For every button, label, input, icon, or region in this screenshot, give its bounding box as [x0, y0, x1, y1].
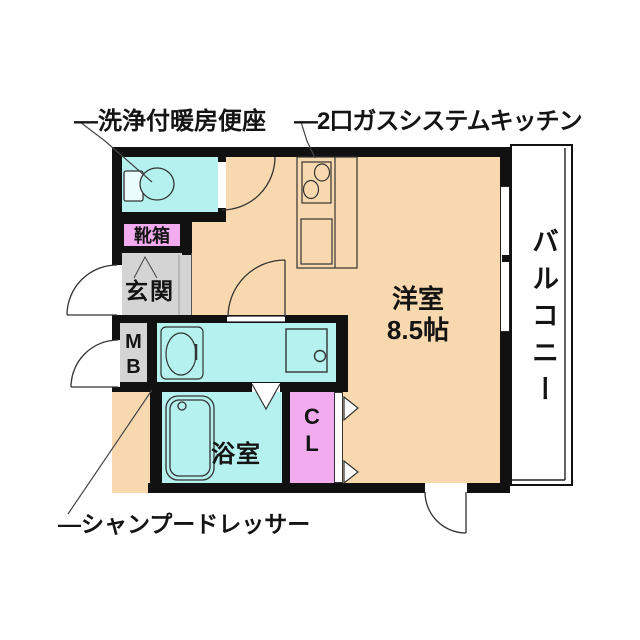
kitchen-unit-icon	[297, 157, 357, 268]
closet-letter-c: C	[290, 403, 334, 430]
washbasin-icon	[161, 327, 203, 379]
shampoo-leader-line	[68, 390, 152, 514]
main-room-door-icon	[228, 260, 285, 317]
bathroom-door-icon	[252, 384, 280, 409]
balcony-label: バルコニー	[524, 227, 563, 412]
meter-box-label: M B	[120, 330, 147, 380]
meter-box-letter-b: B	[120, 355, 147, 380]
window-icon	[500, 186, 510, 332]
meter-box-door-icon	[71, 340, 118, 387]
toilet-icon	[124, 168, 174, 201]
western-room-label: 洋室 8.5帖	[368, 284, 468, 346]
floorplan-canvas: —洗浄付暖房便座 —2口ガスシステムキッチン —シャンプードレッサー 靴箱 玄関…	[0, 0, 640, 640]
shampoo-annotation: —シャンプードレッサー	[58, 505, 310, 539]
kitchen-sink-icon	[301, 219, 332, 264]
toilet-annotation: —洗浄付暖房便座	[74, 101, 266, 136]
meter-box-letter-m: M	[120, 330, 147, 355]
leader-lines	[68, 122, 315, 514]
kitchen-annotation: —2口ガスシステムキッチン	[294, 101, 582, 136]
washing-machine-pan-icon	[286, 329, 327, 372]
western-room-size: 8.5帖	[368, 315, 468, 346]
bathtub-icon	[166, 396, 214, 480]
closet-letter-l: L	[290, 430, 334, 457]
shoebox-label: 靴箱	[122, 222, 182, 248]
bottom-exit-door-icon	[425, 492, 466, 533]
bathroom-label: 浴室	[211, 434, 261, 469]
closet-label: C L	[290, 403, 334, 457]
closet-folding-doors-icon	[344, 397, 358, 483]
western-room-name: 洋室	[368, 284, 468, 315]
toilet-door-icon	[222, 157, 275, 210]
entrance-label: 玄関	[125, 272, 175, 306]
entrance-door-icon	[67, 265, 117, 315]
